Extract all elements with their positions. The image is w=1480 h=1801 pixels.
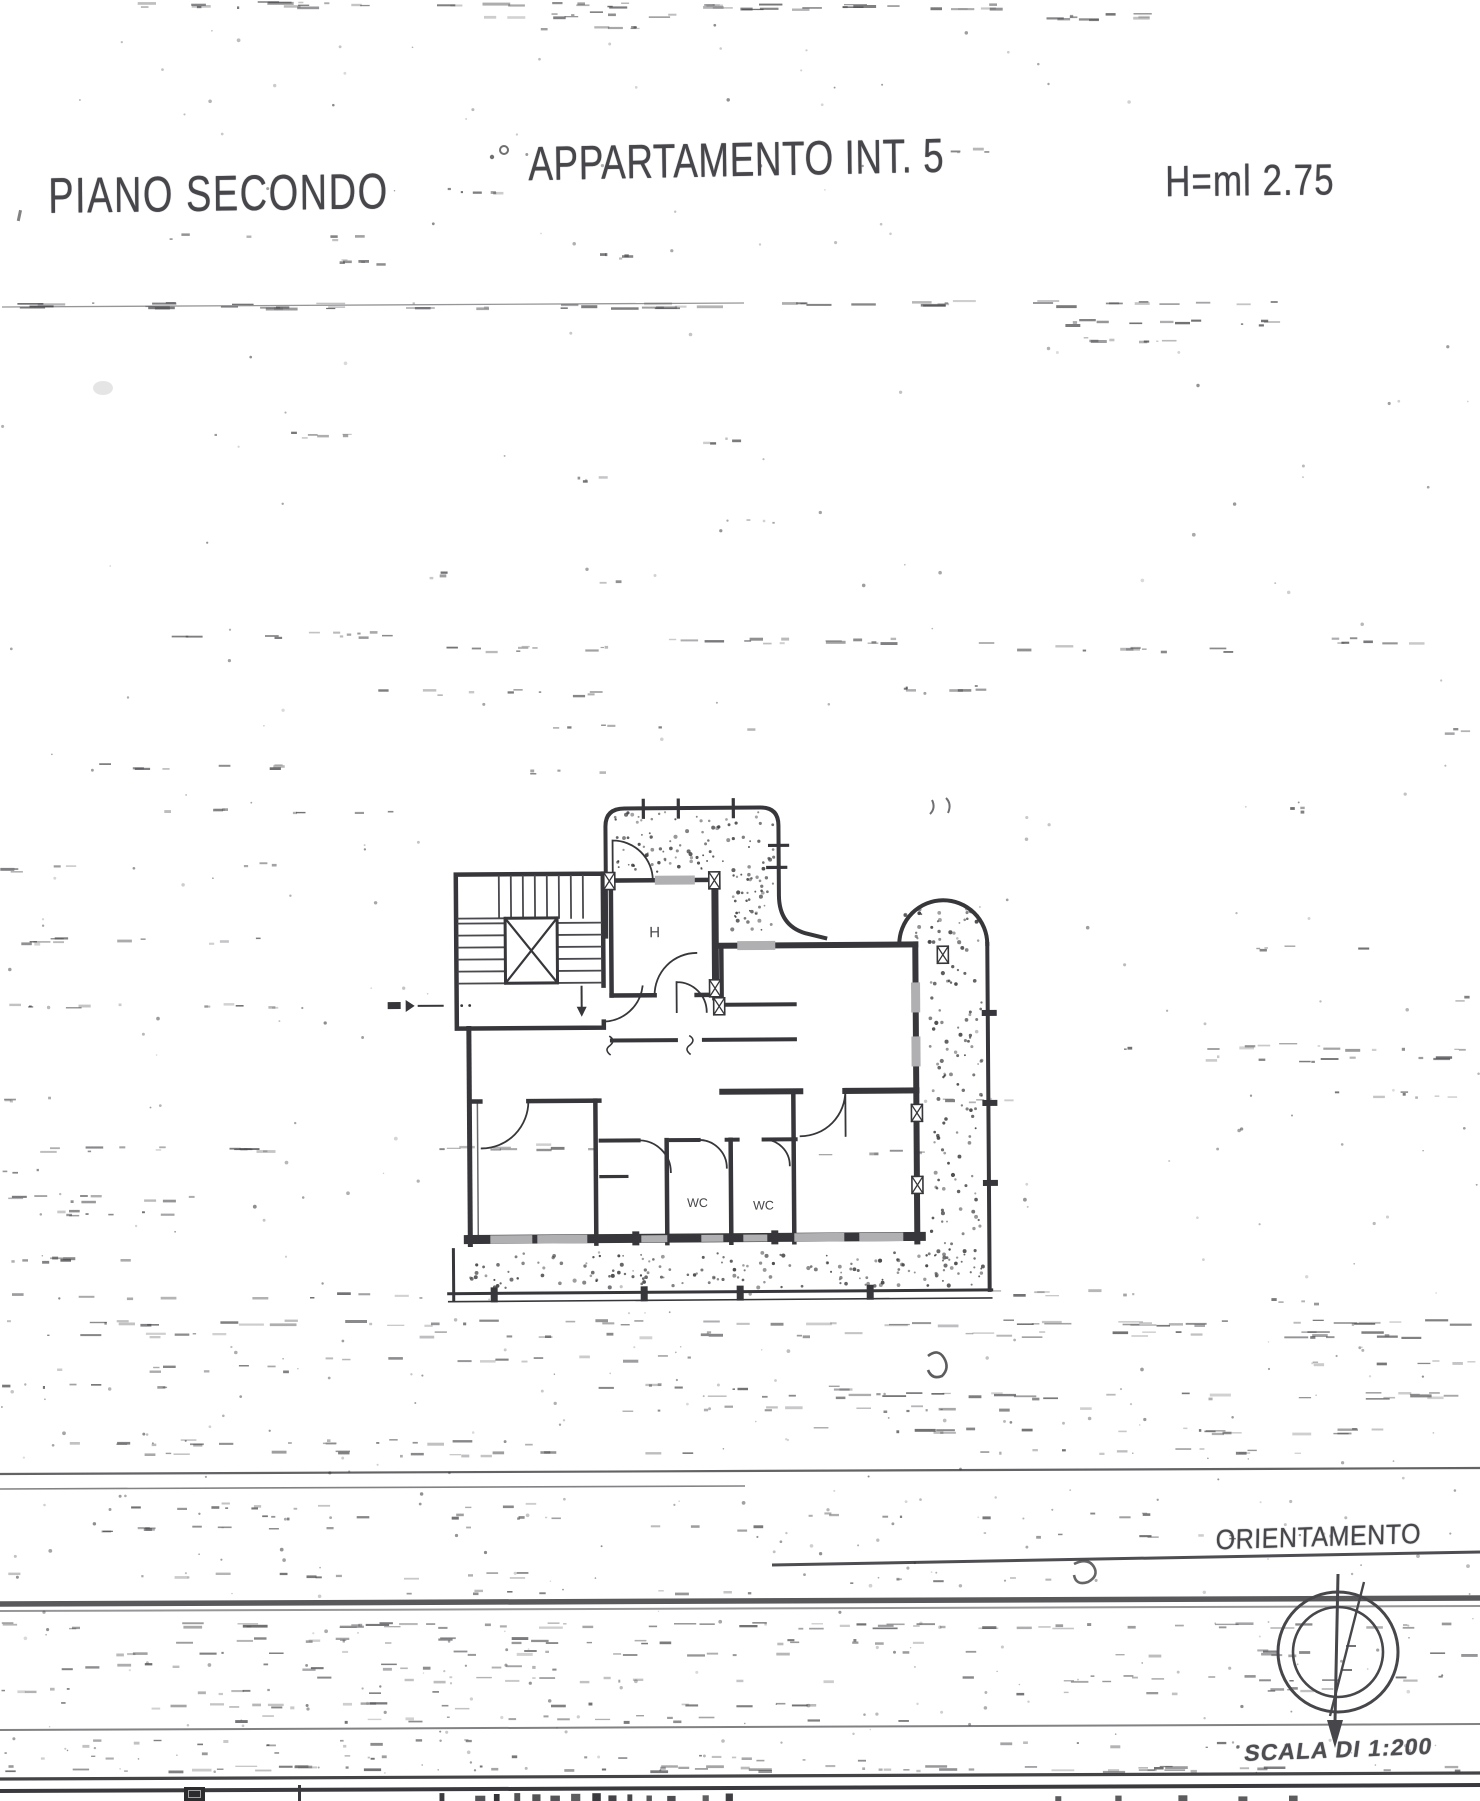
corridor — [604, 981, 795, 1054]
orientation-label: ORIENTAMENTO — [1215, 1521, 1421, 1555]
cutoff-text-marks — [440, 1793, 1298, 1801]
elevator-shaft-icon — [505, 918, 557, 983]
floorplan-drawing: H — [370, 770, 1010, 1310]
scanned-floorplan-page: PIANO SECONDO APPARTAMENTO INT. 5 H=ml 2… — [0, 0, 1480, 1801]
room-h-label: H — [649, 924, 661, 941]
floor-title: PIANO SECONDO — [48, 167, 389, 222]
stamp-box-mark — [184, 1787, 205, 1801]
stipple-texture — [466, 809, 985, 1292]
wc-label-1: WC — [687, 1196, 708, 1210]
south-wall — [468, 1229, 921, 1246]
column-markers — [604, 870, 950, 1195]
bedrooms-and-wcs: WC WC — [469, 1025, 917, 1244]
stairwell — [456, 874, 604, 1029]
ceiling-height-label: H=ml 2.75 — [1165, 158, 1335, 204]
apartment-title: APPARTAMENTO INT. 5 — [528, 132, 944, 189]
footer-divider — [298, 1785, 301, 1801]
wc-label-2: WC — [753, 1198, 774, 1212]
